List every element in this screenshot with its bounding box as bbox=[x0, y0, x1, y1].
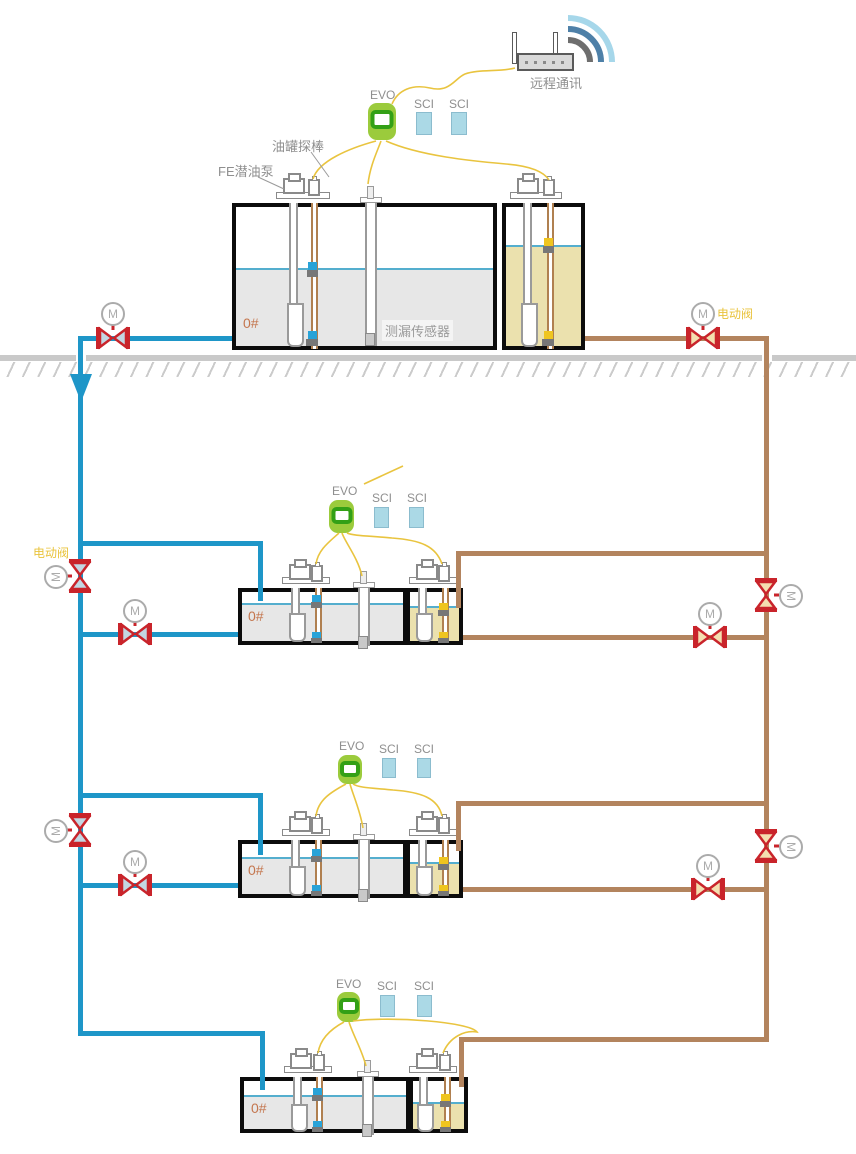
pump-column bbox=[293, 1077, 302, 1107]
evo-controller bbox=[337, 992, 360, 1022]
brown-fill-branch-row3 bbox=[458, 801, 764, 806]
router-icon bbox=[517, 53, 574, 71]
probe-float bbox=[543, 246, 554, 253]
motor-valve-label: 电动阀 bbox=[33, 544, 69, 561]
blue-fill-drop-row4 bbox=[260, 1031, 265, 1090]
tank-station-2: 0# bbox=[238, 588, 463, 645]
brown-main-pipe bbox=[764, 336, 769, 1042]
evo-screen bbox=[371, 110, 394, 129]
leak-sensor-tip bbox=[358, 636, 368, 649]
motor-valve-icon bbox=[686, 325, 720, 351]
pump-motor bbox=[416, 1053, 438, 1069]
submersible-pump-body bbox=[287, 303, 304, 347]
probe-float bbox=[311, 602, 322, 608]
tank-probe-rod bbox=[547, 203, 554, 349]
pump-column bbox=[418, 588, 427, 616]
leak-sensor-tip bbox=[358, 889, 368, 902]
probe-float bbox=[311, 856, 322, 862]
fuel-grade-label: 0# bbox=[248, 608, 264, 624]
submersible-pump-body bbox=[521, 303, 538, 347]
evo-screen bbox=[339, 998, 359, 1014]
evo-controller bbox=[338, 755, 362, 784]
probe-float bbox=[312, 595, 321, 602]
valve-motor-indicator: M bbox=[698, 602, 722, 626]
pump-column bbox=[523, 203, 532, 305]
probe-float bbox=[308, 262, 317, 270]
sci-module bbox=[417, 995, 432, 1017]
valve-motor-indicator: M bbox=[101, 302, 125, 326]
probe-float bbox=[308, 331, 317, 339]
probe-head bbox=[311, 817, 323, 834]
motor-valve-icon bbox=[118, 621, 152, 647]
tank-divider bbox=[406, 1081, 413, 1129]
leak-sensor-cap bbox=[367, 186, 374, 199]
submersible-pump-body bbox=[289, 613, 306, 642]
probe-float bbox=[438, 638, 449, 643]
sci-label: SCI bbox=[414, 742, 434, 756]
pump-column bbox=[289, 203, 298, 305]
motor-valve-icon bbox=[67, 813, 93, 847]
probe-head bbox=[438, 817, 450, 834]
sci-module bbox=[451, 112, 467, 135]
submersible-pump-label: FE潜油泵 bbox=[218, 161, 274, 180]
valve-motor-indicator: M bbox=[779, 835, 803, 859]
diesel-liquid bbox=[242, 857, 405, 894]
valve-motor-indicator: M bbox=[123, 599, 147, 623]
evo-label: EVO bbox=[332, 484, 357, 498]
motor-valve-icon bbox=[693, 624, 727, 650]
brown-fill-branch-row2 bbox=[458, 551, 764, 556]
probe-head bbox=[313, 1054, 325, 1071]
motor-valve-label: 电动阀 bbox=[717, 305, 753, 322]
motor-valve-icon bbox=[691, 876, 725, 902]
probe-float bbox=[439, 857, 448, 864]
ground-line bbox=[86, 355, 762, 361]
probe-head bbox=[438, 565, 450, 582]
blue-fill-branch-row3 bbox=[83, 793, 261, 798]
flow-arrow-icon bbox=[70, 374, 92, 402]
diesel-liquid bbox=[244, 1095, 408, 1129]
evo-label: EVO bbox=[370, 88, 395, 102]
valve-motor-indicator: M bbox=[44, 565, 68, 589]
probe-float bbox=[312, 1127, 323, 1132]
fuel-grade-label: 0# bbox=[243, 315, 259, 331]
tank-monitoring-diagram: 远程通讯 EVO SCI SCI 油罐探棒 FE潜油泵 0# 测漏传感器 bbox=[0, 0, 856, 1154]
fuel-grade-label: 0# bbox=[251, 1100, 267, 1116]
probe-float bbox=[438, 891, 449, 896]
fuel-grade-label: 0# bbox=[248, 862, 264, 878]
pump-column bbox=[419, 1077, 428, 1107]
leak-sensor-tip bbox=[362, 1124, 372, 1137]
remote-comm-label: 远程通讯 bbox=[530, 73, 582, 92]
sci-label: SCI bbox=[379, 742, 399, 756]
blue-fill-branch-row2 bbox=[83, 541, 261, 546]
sci-label: SCI bbox=[377, 979, 397, 993]
probe-head bbox=[439, 1054, 451, 1071]
blue-main-pipe bbox=[78, 336, 83, 1036]
motor-valve-icon bbox=[96, 325, 130, 351]
probe-float bbox=[438, 610, 449, 616]
pump-motor bbox=[290, 1053, 312, 1069]
pump-column bbox=[291, 588, 300, 616]
brown-bottom-run bbox=[461, 1037, 769, 1042]
blue-fill-drop-row3 bbox=[258, 793, 263, 855]
pump-motor bbox=[416, 564, 438, 580]
evo-screen bbox=[331, 507, 352, 524]
router-led-strip bbox=[525, 61, 565, 64]
leak-sensor-cap bbox=[360, 571, 367, 584]
sci-module bbox=[380, 995, 395, 1017]
submersible-pump-body bbox=[417, 1104, 434, 1132]
diesel-liquid bbox=[242, 603, 405, 641]
submersible-pump-body bbox=[416, 613, 433, 642]
pump-motor bbox=[416, 816, 438, 832]
blue-suction-branch-row2 bbox=[83, 632, 238, 637]
pump-motor bbox=[289, 564, 311, 580]
evo-controller bbox=[329, 500, 354, 533]
leak-sensor-cap bbox=[364, 1060, 371, 1073]
leak-sensor-tip bbox=[365, 333, 375, 346]
sci-label: SCI bbox=[414, 97, 434, 111]
leak-sensor-cap bbox=[360, 823, 367, 836]
brown-fill-drop-row4 bbox=[459, 1037, 464, 1087]
probe-float bbox=[307, 270, 318, 277]
probe-float bbox=[544, 238, 553, 246]
tank-divider bbox=[403, 592, 410, 641]
ground-hatch bbox=[0, 362, 856, 377]
sci-label: SCI bbox=[372, 491, 392, 505]
submersible-pump-body bbox=[416, 866, 433, 896]
submersible-pump-body bbox=[289, 866, 306, 896]
motor-valve-icon bbox=[753, 578, 779, 612]
tank-station-1-left: 0# 测漏传感器 bbox=[232, 203, 497, 350]
valve-motor-indicator: M bbox=[696, 854, 720, 878]
pump-motor bbox=[283, 178, 305, 194]
pump-column bbox=[418, 840, 427, 868]
pump-motor bbox=[289, 816, 311, 832]
evo-label: EVO bbox=[339, 739, 364, 753]
sci-module bbox=[374, 507, 389, 528]
brown-fill-drop-row3 bbox=[456, 801, 461, 851]
probe-float bbox=[441, 1094, 450, 1101]
submersible-pump-body bbox=[291, 1104, 308, 1132]
blue-bottom-run bbox=[78, 1031, 265, 1036]
probe-head bbox=[308, 179, 320, 196]
sci-module bbox=[409, 507, 424, 528]
sci-label: SCI bbox=[414, 979, 434, 993]
probe-float bbox=[311, 638, 322, 643]
evo-label: EVO bbox=[336, 977, 361, 991]
motor-valve-icon bbox=[67, 559, 93, 593]
probe-float bbox=[438, 864, 449, 870]
tank-divider bbox=[403, 844, 410, 894]
probe-float bbox=[440, 1127, 451, 1132]
evo-controller bbox=[368, 103, 396, 140]
probe-head bbox=[311, 565, 323, 582]
brown-fill-drop-row2 bbox=[456, 551, 461, 608]
valve-motor-indicator: M bbox=[691, 302, 715, 326]
probe-float bbox=[544, 331, 553, 339]
probe-float bbox=[311, 891, 322, 896]
blue-suction-branch-row3 bbox=[83, 883, 238, 888]
probe-float bbox=[542, 339, 554, 346]
sci-module bbox=[416, 112, 432, 135]
pump-motor bbox=[517, 178, 539, 194]
probe-float bbox=[313, 1088, 322, 1095]
probe-float bbox=[312, 849, 321, 856]
sci-module bbox=[382, 758, 396, 778]
probe-float bbox=[439, 603, 448, 610]
tank-station-1-right bbox=[502, 203, 585, 350]
valve-motor-indicator: M bbox=[779, 584, 803, 608]
sci-label: SCI bbox=[407, 491, 427, 505]
valve-motor-indicator: M bbox=[123, 850, 147, 874]
probe-float bbox=[306, 339, 318, 346]
brown-pipe-row1 bbox=[585, 336, 764, 341]
blue-fill-drop-row2 bbox=[258, 541, 263, 601]
tank-probe-label: 油罐探棒 bbox=[272, 136, 324, 155]
leak-sensor-tube bbox=[365, 199, 377, 346]
leak-sensor-label: 测漏传感器 bbox=[382, 320, 453, 341]
motor-valve-icon bbox=[753, 829, 779, 863]
probe-float bbox=[312, 1095, 323, 1101]
evo-screen bbox=[340, 761, 360, 777]
sci-label: SCI bbox=[449, 97, 469, 111]
probe-head bbox=[543, 179, 555, 196]
tank-station-3: 0# bbox=[238, 840, 463, 898]
tank-station-4: 0# bbox=[240, 1077, 468, 1133]
ground-line bbox=[772, 355, 856, 361]
valve-motor-indicator: M bbox=[44, 819, 68, 843]
motor-valve-icon bbox=[118, 872, 152, 898]
ground-line bbox=[0, 355, 76, 361]
pump-column bbox=[291, 840, 300, 868]
probe-float bbox=[440, 1101, 451, 1107]
sci-module bbox=[417, 758, 431, 778]
